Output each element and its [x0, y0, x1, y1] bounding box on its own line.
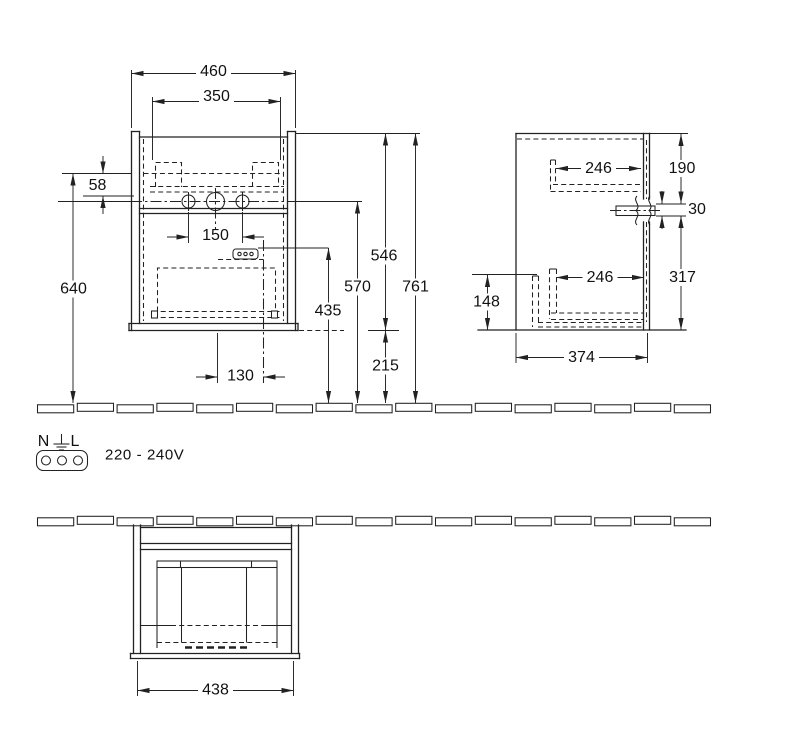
technical-drawing-canvas: N L 220 - 240V — [0, 0, 785, 740]
dim-front-tap-hole-spacing: 150 — [202, 227, 229, 244]
dim-front-fixing-offset: 58 — [89, 177, 107, 194]
line-label: L — [71, 433, 80, 450]
floor-hatch-upper — [38, 403, 711, 413]
dim-front-tap-hole-height: 570 — [344, 279, 371, 296]
bottom-view — [131, 525, 300, 659]
dim-side-lower-offset: 317 — [669, 269, 696, 286]
dim-side-rail-height: 148 — [473, 294, 500, 311]
dim-front-cabinet-height: 546 — [371, 248, 398, 265]
side-view-dimensions — [472, 134, 688, 364]
dim-side-tab-thickness: 30 — [688, 201, 706, 218]
dim-side-depth: 374 — [568, 349, 595, 366]
front-view — [58, 132, 420, 384]
front-view-dimensions — [73, 70, 416, 403]
dim-front-overall-height: 761 — [402, 279, 429, 296]
dim-front-socket-height: 435 — [315, 303, 342, 320]
dim-front-fixing-height: 640 — [60, 281, 87, 298]
dim-front-socket-offset: 130 — [227, 368, 254, 385]
floor-hatch-lower — [38, 516, 711, 526]
dim-side-top-offset: 190 — [669, 160, 696, 177]
power-socket-symbol — [233, 249, 258, 259]
dim-front-fixing-width: 350 — [203, 88, 230, 105]
dim-front-floor-clearance: 215 — [372, 358, 399, 375]
dim-bottom-width: 438 — [202, 682, 229, 699]
dim-front-overall-width: 460 — [200, 63, 227, 80]
plug-socket-outline — [37, 451, 88, 471]
neutral-label: N — [38, 433, 50, 450]
electrical-connection-symbol: N L 220 - 240V — [37, 433, 185, 471]
voltage-label: 220 - 240V — [105, 447, 184, 464]
earth-ground-icon — [54, 434, 70, 450]
technical-drawing-page: N L 220 - 240V — [0, 0, 785, 740]
dim-side-rail-top-length: 246 — [585, 160, 612, 177]
dim-side-rail-bottom-length: 246 — [587, 269, 614, 286]
